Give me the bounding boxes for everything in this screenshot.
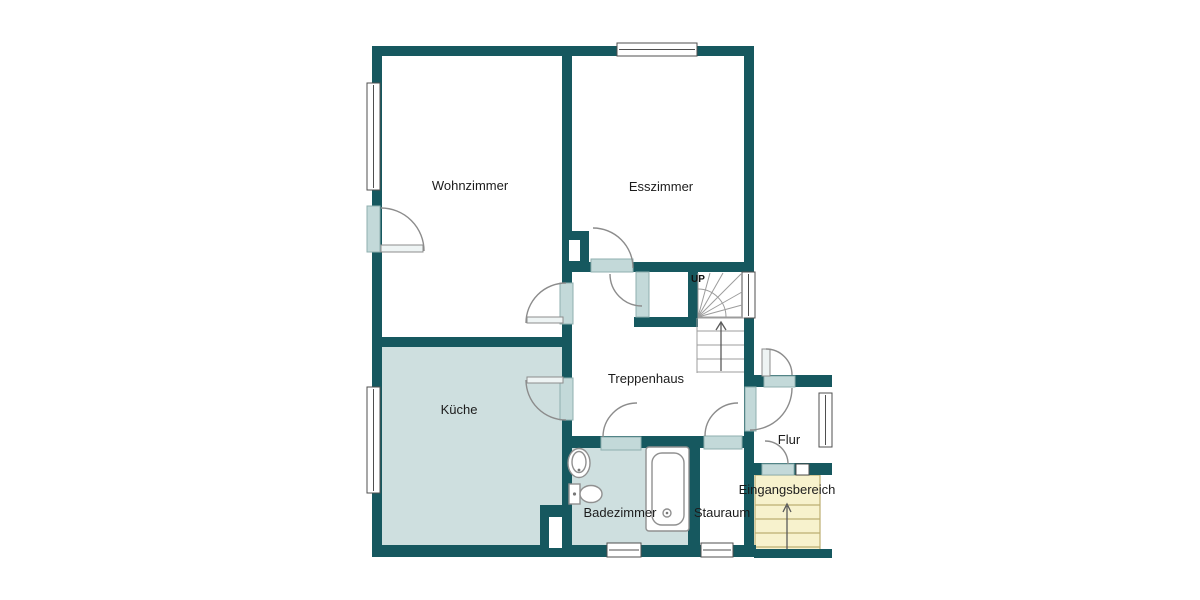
room-label-badezimmer: Badezimmer	[584, 505, 658, 520]
room-label-eingangsbereich: Eingangsbereich	[739, 482, 836, 497]
toilet-bowl	[580, 486, 602, 503]
door-exterior-left	[367, 206, 380, 252]
door-badezimmer	[601, 437, 641, 450]
door-exterior-left-leaf	[381, 245, 423, 252]
door-stauraum-swing	[705, 403, 738, 436]
room-label-stauraum: Stauraum	[694, 505, 750, 520]
wall-bad-stauraum	[688, 447, 700, 547]
door-stair-closet	[636, 272, 649, 317]
door-wohnzimmer-leaf	[527, 317, 563, 323]
door-kueche-leaf	[527, 377, 563, 383]
wall-kueche-top	[372, 337, 572, 347]
chimney-kueche-flue	[549, 517, 562, 548]
door-eingang	[762, 464, 794, 475]
room-label-wohnzimmer: Wohnzimmer	[432, 178, 509, 193]
door-flur-entry	[745, 387, 756, 431]
stairs-up-label: UP	[691, 274, 705, 285]
floor-plan: Wohnzimmer Esszimmer Küche Treppenhaus B…	[0, 0, 1200, 600]
window-eingang-sidelight	[796, 464, 809, 475]
room-label-esszimmer: Esszimmer	[629, 179, 694, 194]
door-esszimmer	[591, 259, 633, 272]
door-kueche	[560, 378, 573, 420]
door-badezimmer-swing	[603, 403, 637, 437]
floor-plan-canvas: Wohnzimmer Esszimmer Küche Treppenhaus B…	[0, 0, 1200, 600]
door-flur-exterior-leaf	[762, 349, 770, 376]
room-label-treppenhaus: Treppenhaus	[608, 371, 685, 386]
door-flur-exterior	[764, 376, 795, 387]
wall-stair-closet-bottom	[634, 317, 698, 327]
wall-exterior-bottom-right	[754, 549, 832, 558]
room-label-flur: Flur	[778, 432, 801, 447]
door-stauraum	[704, 436, 742, 449]
chimney-esszimmer-flue	[569, 240, 580, 261]
room-label-kueche: Küche	[441, 402, 478, 417]
interior-staircase	[697, 273, 744, 373]
